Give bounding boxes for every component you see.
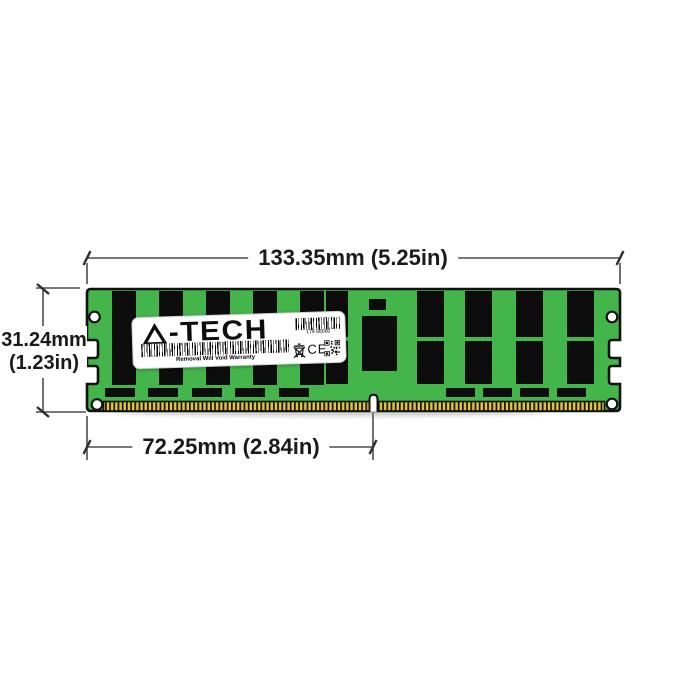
weee-bin-icon <box>293 342 306 359</box>
chip-bottom-bar <box>557 388 586 397</box>
mounting-hole <box>607 399 618 410</box>
chip-bottom-bar <box>279 388 309 397</box>
chip-bottom-bar <box>483 388 512 397</box>
pin-row <box>104 402 605 412</box>
chip-bottom-bar <box>105 388 135 397</box>
mounting-hole <box>92 399 103 410</box>
memory-chip <box>465 291 492 337</box>
qr-code-icon <box>324 340 340 356</box>
product-label: -TECH 179 88000 Removal Will Void Warran… <box>131 311 347 370</box>
serial-number: 179 88000 <box>299 329 337 336</box>
pin-span-dimension-label: 72.25mm (2.84in) <box>132 432 329 462</box>
mounting-hole <box>607 312 618 323</box>
width-dimension-label: 133.35mm (5.25in) <box>248 243 458 273</box>
diagram-canvas: 133.35mm (5.25in) 31.24mm (1.23in) 72.25… <box>0 0 700 700</box>
key-notch <box>370 395 378 412</box>
chip-bottom-bar <box>446 388 475 397</box>
height-dimension-mm: 31.24mm <box>1 329 87 352</box>
memory-chip <box>567 291 594 337</box>
register-chip <box>369 299 386 310</box>
memory-chip <box>516 291 543 337</box>
diagram-graphics <box>0 0 700 700</box>
memory-chip <box>417 291 444 337</box>
mounting-hole <box>89 312 100 323</box>
memory-chip <box>465 341 492 384</box>
buffer-chip <box>362 316 397 371</box>
a-tech-triangle-icon <box>141 322 168 346</box>
memory-chip <box>516 341 543 384</box>
chip-bottom-bar <box>192 388 222 397</box>
chip-bottom-bar <box>148 388 178 397</box>
chip-bottom-bar <box>235 388 265 397</box>
serial-block: 179 88000 <box>295 317 341 337</box>
height-dimension-label: 31.24mm (1.23in) <box>1 326 87 378</box>
memory-chip <box>417 341 444 384</box>
memory-chip <box>567 341 594 384</box>
chip-bottom-bar <box>520 388 549 397</box>
height-dimension-in: (1.23in) <box>1 352 87 375</box>
